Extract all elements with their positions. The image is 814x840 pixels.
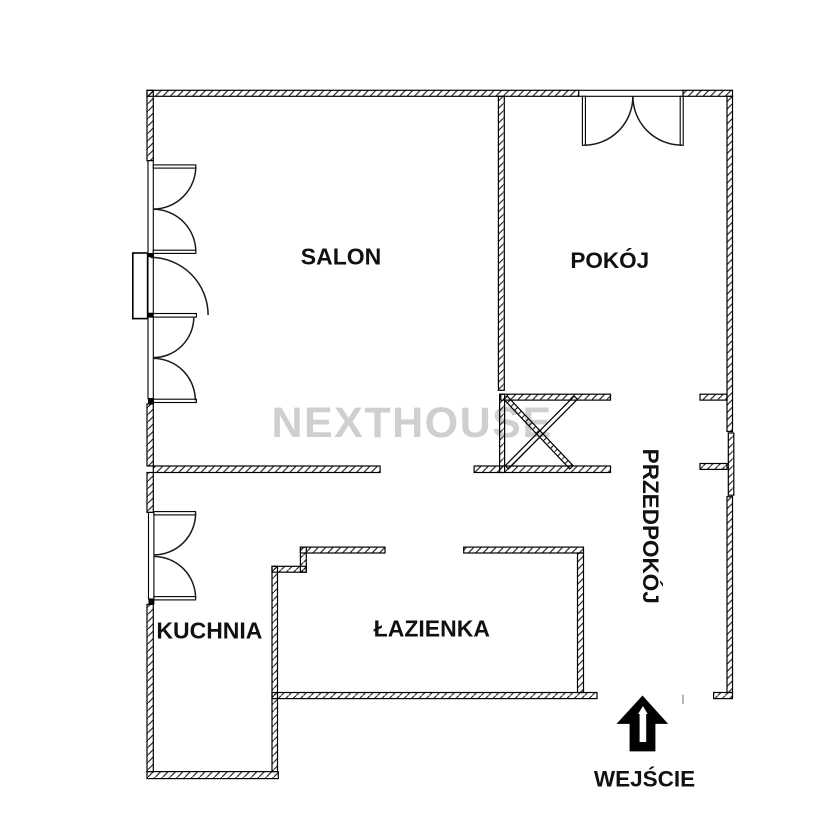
svg-text:POKÓJ: POKÓJ [570, 248, 649, 273]
svg-text:PRZEDPOKÓJ: PRZEDPOKÓJ [638, 449, 663, 604]
svg-text:ŁAZIENKA: ŁAZIENKA [374, 615, 490, 641]
svg-text:WEJŚCIE: WEJŚCIE [594, 767, 695, 792]
svg-text:KUCHNIA: KUCHNIA [156, 617, 262, 643]
svg-text:SALON: SALON [301, 244, 382, 270]
